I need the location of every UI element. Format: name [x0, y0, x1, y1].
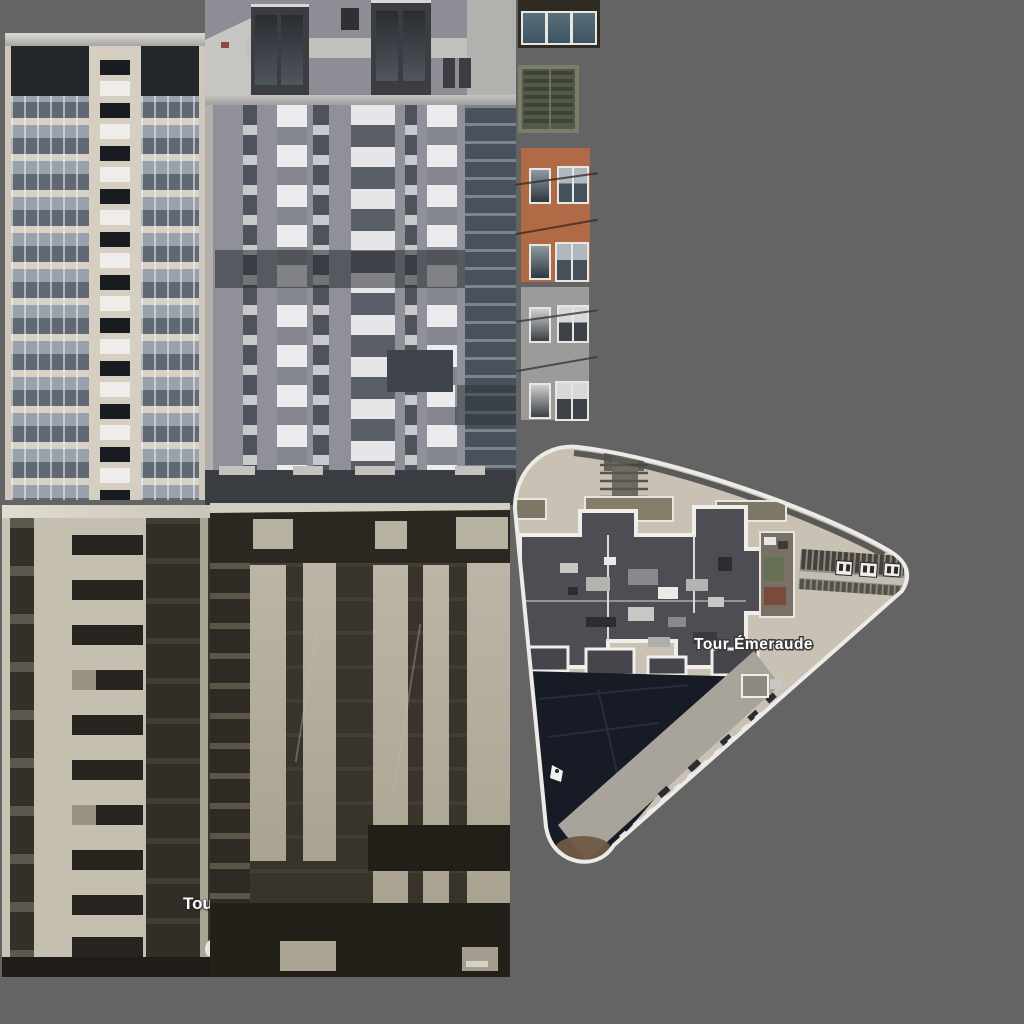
awning — [355, 466, 395, 475]
window — [529, 307, 551, 343]
awning — [219, 466, 255, 475]
facade-gray-tower — [205, 0, 516, 505]
penthouse-window — [255, 15, 277, 85]
roof-window — [459, 58, 471, 88]
power-line — [516, 356, 597, 372]
top-floor-windows — [141, 46, 199, 96]
window-band — [72, 535, 143, 555]
white-dash — [466, 961, 488, 967]
penthouse — [251, 4, 309, 99]
power-line — [516, 219, 598, 235]
awning — [455, 466, 485, 475]
partial-map-label: Tou — [183, 893, 213, 917]
tile-window-green — [518, 65, 579, 133]
window-band — [72, 715, 143, 735]
light-block — [253, 519, 293, 549]
light-block — [375, 521, 407, 549]
balcony-column-right — [141, 46, 205, 500]
dark-connector — [387, 350, 453, 392]
roof-window — [443, 58, 455, 88]
aerial-view-tour-emeraude: Tour Émeraude — [508, 437, 918, 868]
facade-balcony-tower — [5, 33, 205, 500]
window-band — [72, 670, 143, 690]
facade-wall — [205, 105, 516, 470]
glass-pane — [548, 13, 570, 43]
awning — [293, 466, 323, 475]
tile-facade-brick — [521, 148, 590, 282]
penthouse — [371, 0, 431, 99]
window-band — [72, 805, 143, 825]
facade-core — [89, 46, 141, 500]
shadow-band — [455, 385, 516, 425]
balcony-column-left — [5, 46, 89, 500]
top-floor-windows — [11, 46, 89, 96]
roof-edge — [5, 33, 205, 46]
window — [529, 168, 551, 204]
penthouse-window — [376, 11, 398, 81]
window — [555, 242, 589, 282]
window — [529, 244, 551, 280]
side-roof — [760, 532, 794, 617]
light-block — [456, 517, 508, 549]
dark-band — [368, 825, 510, 871]
base-band — [2, 957, 214, 977]
penthouse-window — [281, 15, 303, 85]
fence-strip — [798, 549, 905, 596]
facade-dark-left: Tou — [2, 505, 214, 977]
tile-facade-gray — [521, 287, 589, 420]
shadow-band — [215, 250, 465, 288]
roof-slab — [205, 95, 516, 105]
texture-atlas-canvas: { "labels": { "aerial": "Tour Émeraude",… — [0, 0, 1024, 1024]
window — [555, 381, 589, 421]
glass-pane — [573, 13, 595, 43]
glass-pane — [523, 13, 545, 43]
penthouse-window — [403, 11, 425, 81]
ground-floor — [205, 470, 516, 505]
window-band — [72, 580, 143, 600]
pillar — [250, 565, 286, 861]
pillar-stub — [462, 947, 498, 971]
chimney — [341, 8, 359, 30]
wall-sliver — [2, 518, 10, 959]
window-band — [72, 850, 143, 870]
roof-detail — [221, 42, 229, 48]
wall-edge — [205, 105, 213, 470]
pillar-stub — [280, 941, 336, 971]
tile-balcony-glass — [518, 0, 600, 48]
window-mullion — [549, 69, 551, 129]
map-label: Tour Émeraude — [694, 636, 813, 653]
roof-light-right — [467, 0, 516, 95]
facade-dark-mid — [210, 503, 510, 977]
window-ladder-strip — [210, 563, 250, 903]
window-band — [72, 937, 143, 957]
blob-dot — [555, 769, 559, 773]
window-band — [72, 760, 143, 780]
dark-strip — [10, 518, 34, 959]
window — [529, 383, 551, 419]
window — [557, 166, 589, 204]
window-band — [72, 895, 143, 915]
window-band — [72, 625, 143, 645]
window-stack — [100, 60, 130, 500]
